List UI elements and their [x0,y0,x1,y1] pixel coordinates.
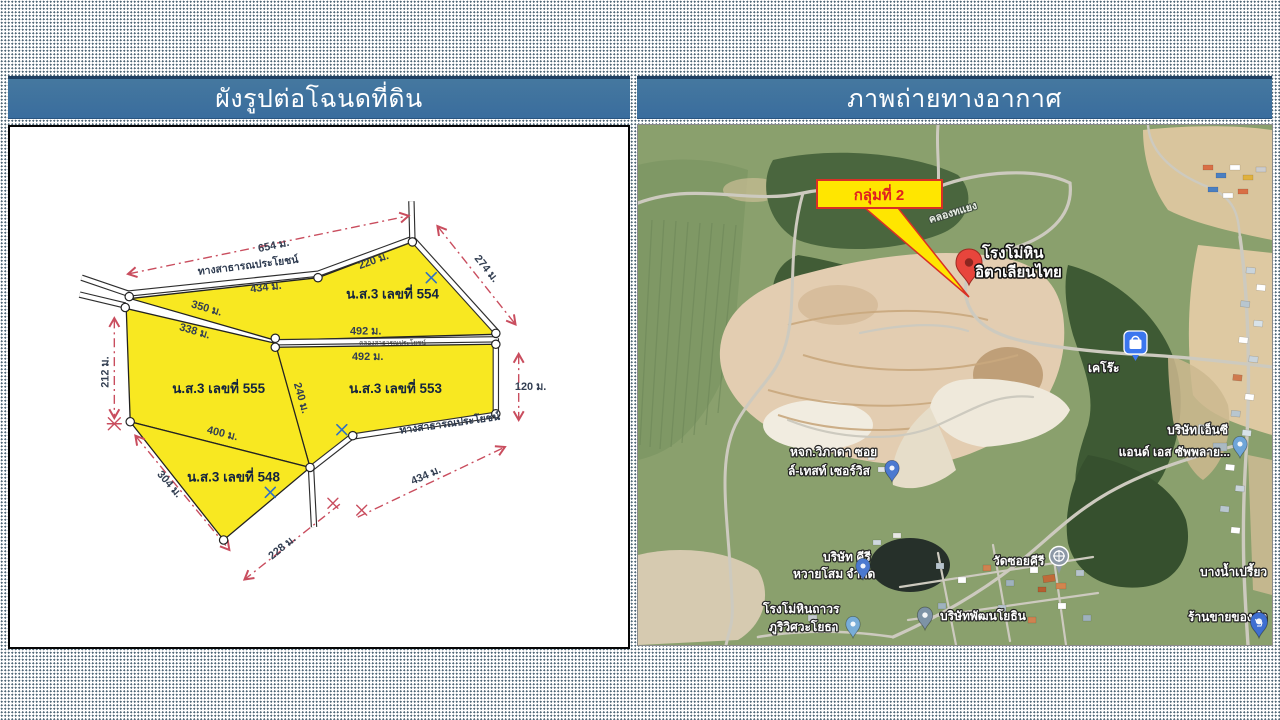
dim-274: 274 ม. [472,253,501,285]
parcel-548-label: น.ส.3 เลขที่ 548 [187,466,280,484]
left-panel-title: ผังรูปต่อโฉนดที่ดิน [215,79,423,119]
nc-label-line2: แอนด์ เอส ซัพพลาย... [1119,445,1230,459]
parcel-555-label: น.ส.3 เลขที่ 555 [172,378,265,396]
dim-120: 120 ม. [515,381,546,393]
bangnam-label: บางน้ำเปรี้ยว [1200,562,1267,579]
aerial-photo: คลองทแยง โรงโม่หิน อิตาเลียนไทย เคโร๊ะ บ… [638,125,1272,645]
thaworn-label-line2: ภูริวิศวะโยธา [769,619,838,635]
quarry-label-line2: อิตาเลียนไทย [975,262,1062,281]
parcel-553-label: น.ส.3 เลขที่ 553 [349,378,442,396]
deed-plan-panel: ทางสาธารณประโยชน์ 434 ม. 220 ม. 654 ม. 2… [8,125,630,649]
keroh-label: เคโร๊ะ [1088,360,1119,375]
right-panel-header: ภาพถ่ายทางอากาศ [637,76,1272,119]
dim-654: 654 ม. [257,237,290,255]
dim-492-top: 492 ม. [350,325,381,337]
right-panel-title: ภาพถ่ายทางอากาศ [847,79,1062,119]
dim-228: 228 ม. [266,533,298,562]
vipada-label-line2: ล์-เทสท์ เซอร์วิส [788,464,871,478]
left-panel-header: ผังรูปต่อโฉนดที่ดิน [8,76,630,119]
parcel-554-label: น.ส.3 เลขที่ 554 [346,284,439,302]
nc-label-line1: บริษัท เอ็นซี [1167,422,1228,437]
canal-label: คลองสาธารณประโยชน์ [359,339,426,347]
vipada-label-line1: หจก.วิภาดา ซอย [790,445,877,459]
wat-label: วัดซอยคีรี [993,554,1045,568]
callout-group2: กลุ่มที่ 2 [817,180,942,208]
quarry-label-line1: โรงโม่หิน [981,243,1044,262]
thaworn-label-line1: โรงโม่หินถาวร [762,601,840,616]
dim-492-bottom: 492 ม. [352,351,383,363]
deed-plan-drawing: ทางสาธารณประโยชน์ 434 ม. 220 ม. 654 ม. 2… [10,127,624,643]
callout-label: กลุ่มที่ 2 [854,184,905,205]
terrain [638,125,1272,645]
aerial-photo-panel: คลองทแยง โรงโม่หิน อิตาเลียนไทย เคโร๊ะ บ… [638,125,1272,645]
dim-212: 212 ม. [99,356,111,387]
patthana-label: บริษัทพัฒนโยธิน [940,608,1027,623]
